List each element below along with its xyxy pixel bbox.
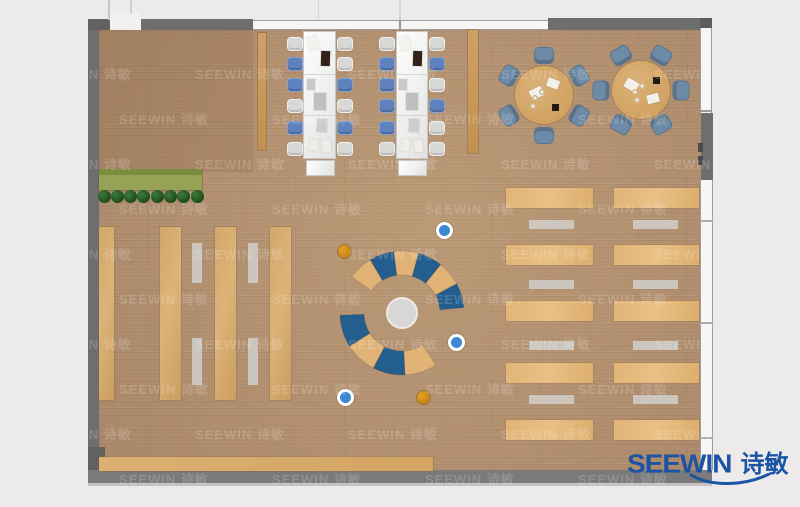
desk-chair-left-1-2 [379,78,395,92]
plant-tree-3 [137,190,150,203]
wall-left [88,19,99,467]
reading-desk-0-0 [506,188,593,208]
stool-orange-1 [417,391,430,404]
window-right-upper [700,28,712,113]
reading-desk-1-1 [614,245,699,265]
stool-blue-seat-2 [439,225,450,236]
round-table-chair-1-3 [593,80,610,100]
desk-chair-right-1-4 [429,121,445,135]
reading-desk-0-2 [506,301,593,321]
desk-chair-right-1-1 [429,57,445,71]
desk-item-0-3 [314,93,326,110]
desk-chair-left-1-4 [379,121,395,135]
ceiling-line-3 [318,0,319,20]
sofa-arc-1-seg-0 [404,345,436,375]
desk-item-0-1 [321,51,331,66]
desk-item-1-3 [406,93,418,110]
desk-seam-0-0 [304,74,335,75]
brand-swoosh-icon [689,473,771,487]
reading-desk-1-3 [614,363,699,383]
desk-seam-1-1 [397,115,427,116]
reading-bench-0-1 [529,280,574,289]
table-cup-1-2 [634,97,640,103]
desk-chair-right-0-1 [337,57,353,71]
desk-chair-right-0-5 [337,142,353,156]
window-right-lower [700,180,713,470]
desk-chair-right-0-4 [337,121,353,135]
brand-logo: SEEWIN 诗敏 [627,451,799,487]
plant-tree-5 [164,190,177,203]
stool-blue-seat-3 [451,337,462,348]
table-cup-0-1 [539,89,545,95]
wall-top-segment-right [548,18,712,30]
ceiling-line-1 [108,0,110,20]
reading-bench-0-2 [529,341,574,350]
desk-chair-right-1-0 [429,37,445,51]
plant-tree-7 [191,190,204,203]
desk-seam-0-1 [304,115,335,116]
lounge-floor-patch [99,29,253,172]
reading-desk-1-4 [614,420,699,440]
stool-blue-3 [448,334,465,351]
desk-chair-right-0-0 [337,37,353,51]
bookshelf-4 [270,227,291,400]
door-opening-top [110,13,141,30]
plant-tree-4 [151,190,164,203]
desk-item-0-6 [321,139,332,152]
right-wall-tick-3 [700,322,713,324]
window-mullion-upper [399,0,401,20]
bench-desk-cap-1 [398,160,427,176]
reading-bench-1-2 [633,341,678,350]
shelf-bench-2 [248,243,258,283]
stool-blue-seat-4 [340,392,351,403]
round-table-chair-1-0 [673,80,690,100]
reading-bench-0-3 [529,395,574,404]
bench-desk-cap-0 [306,160,335,176]
table-cup-0-2 [530,103,536,109]
desk-chair-left-1-1 [379,57,395,71]
desk-chair-left-1-0 [379,37,395,51]
reading-desk-1-2 [614,301,699,321]
stool-blue-4 [337,389,354,406]
wall-top-left-corner [88,19,110,30]
right-door-handle-1 [698,143,703,152]
service-counter [99,457,433,471]
desk-seam-1-0 [397,74,427,75]
reading-desk-0-1 [506,245,593,265]
desk-item-1-2 [399,79,407,90]
desk-chair-left-0-0 [287,37,303,51]
window-mullion [399,20,401,30]
reading-desk-0-3 [506,363,593,383]
right-wall-tick-4 [700,437,713,439]
screen-divider-2 [468,30,478,153]
desk-chair-left-0-4 [287,121,303,135]
plant-tree-6 [177,190,190,203]
desk-item-1-6 [413,139,424,152]
desk-chair-right-0-3 [337,99,353,113]
desk-chair-left-0-2 [287,78,303,92]
desk-item-1-1 [413,51,423,66]
plant-tree-2 [124,190,137,203]
stool-orange-0 [338,245,351,258]
bottom-wall-shadow [88,483,712,486]
bookshelf-3 [215,227,236,400]
round-table-chair-0-0 [534,47,554,64]
bookshelf-1 [99,227,114,400]
bookshelf-2 [160,227,181,400]
shelf-bench-0 [192,243,202,283]
table-dark-item-1 [653,77,660,84]
reading-bench-0-0 [529,220,574,229]
right-door-handle-2 [698,156,703,165]
stool-blue-2 [436,222,453,239]
round-table-1 [612,61,670,119]
wall-top-segment-left [141,19,253,30]
right-wall-tick-2 [700,220,713,222]
desk-chair-left-1-5 [379,142,395,156]
reading-bench-1-3 [633,395,678,404]
desk-chair-left-1-3 [379,99,395,113]
right-wall-tick-1 [700,110,712,112]
desk-chair-right-1-2 [429,78,445,92]
desk-chair-right-1-5 [429,142,445,156]
table-cup-0-0 [532,95,538,101]
screen-divider-1 [258,33,266,150]
reading-bench-1-0 [633,220,678,229]
desk-chair-left-0-3 [287,99,303,113]
desk-item-1-4 [409,119,420,133]
desk-chair-right-1-3 [429,99,445,113]
desk-chair-left-0-5 [287,142,303,156]
desk-chair-left-0-1 [287,57,303,71]
desk-item-0-4 [317,119,328,133]
center-round-table [386,297,418,329]
round-table-chair-0-3 [534,127,554,144]
plant-tree-1 [111,190,124,203]
wall-bottom [88,470,712,483]
table-cup-1-0 [632,89,638,95]
table-dark-item-0 [552,104,559,111]
shelf-bench-1 [192,338,202,385]
table-cup-1-1 [639,83,645,89]
reading-desk-0-4 [506,420,593,440]
desk-item-0-2 [307,79,315,90]
shelf-bench-3 [248,338,258,385]
reading-desk-1-0 [614,188,699,208]
planter-edge [99,169,202,175]
ceiling-line-2 [130,0,132,14]
plant-tree-0 [98,190,111,203]
desk-chair-right-0-2 [337,78,353,92]
floor-plan-canvas: SEEWIN 诗敏 SEEWIN 诗敏SEEWIN 诗敏SEEWIN 诗敏SEE… [0,0,800,507]
reading-bench-1-1 [633,280,678,289]
